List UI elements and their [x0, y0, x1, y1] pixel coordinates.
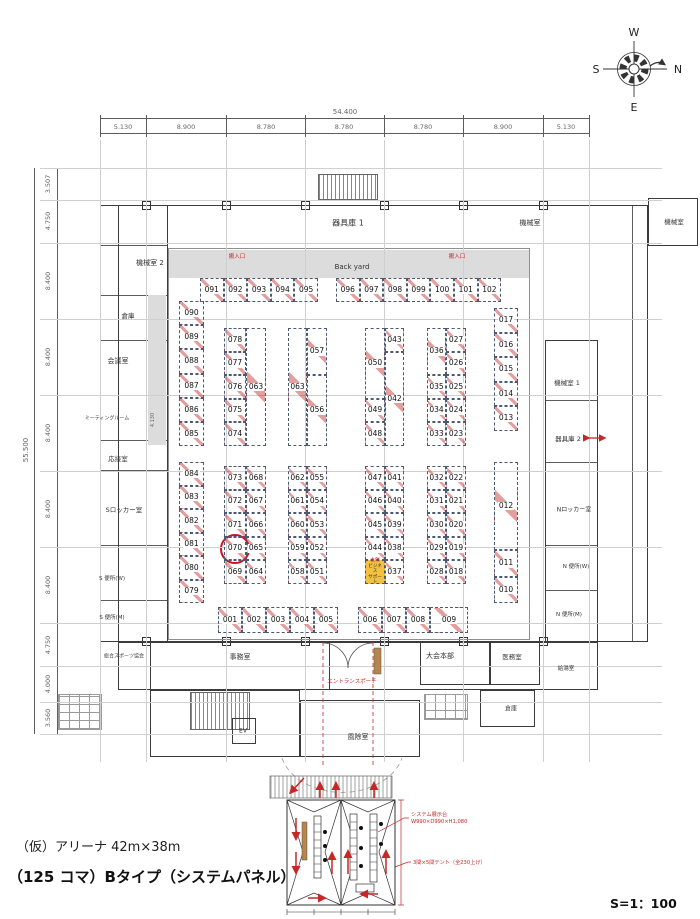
booth-cell: 054 — [307, 490, 327, 514]
booth-number: 087 — [183, 382, 199, 390]
booth-cell: 035 — [427, 375, 446, 399]
booth-cell: 022 — [446, 466, 466, 490]
room-label-equip-store-1: 器具庫 1 — [332, 218, 364, 229]
dimension-segment-left: 4.750 — [44, 636, 52, 655]
booth-number: 033 — [428, 430, 444, 438]
booth-cell: 094 — [271, 278, 295, 302]
booth-number: 102 — [481, 286, 497, 294]
dimension-total-top: 54.400 — [333, 108, 358, 116]
booth-cell: 051 — [307, 560, 327, 584]
booth-number: 093 — [251, 286, 267, 294]
booth-number: 072 — [227, 497, 243, 505]
floor-plan-canvas: W E S N — [0, 0, 700, 919]
booth-cell: 003 — [266, 607, 290, 633]
booth-number: 036 — [428, 347, 444, 355]
booth-cell: 016 — [494, 333, 518, 358]
booth-number: 050 — [367, 359, 383, 367]
booth-number: 092 — [227, 286, 243, 294]
booth-number: 074 — [227, 430, 243, 438]
dimension-segment-left: 4.750 — [44, 212, 52, 231]
booth-number: 077 — [227, 359, 243, 367]
booth-cell: 059 — [288, 537, 307, 561]
booth-number: 088 — [183, 357, 199, 365]
booth-cell: 091 — [200, 278, 224, 302]
booth-number: 076 — [227, 383, 243, 391]
booth-cell: 102 — [478, 278, 502, 302]
dimension-segment-top: 8.900 — [177, 123, 196, 131]
booth-cell: 009 — [430, 607, 468, 633]
booth-cell: 025 — [446, 375, 466, 399]
booth-cell: 098 — [383, 278, 407, 302]
booth-number: 084 — [183, 470, 199, 478]
booth-number: 025 — [448, 383, 464, 391]
booth-cell: 057 — [307, 328, 327, 375]
booth-cell: 065 — [246, 537, 266, 561]
booth-cell: 083 — [179, 486, 204, 510]
booth-cell: 027 — [446, 328, 466, 352]
room-label-storage-br: 倉庫 — [505, 704, 517, 713]
booth-number: 044 — [367, 544, 383, 552]
booth-number: 048 — [367, 430, 383, 438]
booth-number: 090 — [183, 309, 199, 317]
booth-cell: 090 — [179, 301, 204, 325]
booth-cell: 013 — [494, 406, 518, 431]
room-label-machine-room-1: 機械室 1 — [554, 377, 580, 387]
booth-cell: 042 — [385, 352, 404, 446]
booth-number: 083 — [183, 493, 199, 501]
booth-cell: 062 — [288, 466, 307, 490]
booth-number: 078 — [227, 336, 243, 344]
booth-cell: 041 — [385, 466, 404, 490]
booth-cell: 052 — [307, 537, 327, 561]
organizer-support-text: サポート — [366, 575, 384, 586]
booth-cell: 092 — [224, 278, 248, 302]
dimension-segment-left: 8.400 — [44, 272, 52, 291]
booth-cell: 058 — [288, 560, 307, 584]
booth-number: 060 — [289, 521, 305, 529]
room-label-n-toilet-m: N 便所(M) — [556, 610, 582, 618]
booth-number: 020 — [448, 521, 464, 529]
booth-number: 035 — [428, 383, 444, 391]
booth-number: 067 — [248, 497, 264, 505]
booth-cell: 072 — [224, 490, 246, 514]
booth-cell: 015 — [494, 357, 518, 382]
booth-cell: 068 — [246, 466, 266, 490]
booth-cell: 029 — [427, 537, 446, 561]
booth-number: 101 — [458, 286, 474, 294]
booth-cell: 024 — [446, 399, 466, 423]
room-label-s-locker-room: Sロッカー室 — [106, 504, 143, 514]
booth-number: 100 — [434, 286, 450, 294]
booth-cell: 085 — [179, 422, 204, 446]
booth-cell: 089 — [179, 325, 204, 349]
inset-annotation-1a: システム展示台 — [411, 810, 447, 818]
booth-cell: 023 — [446, 422, 466, 446]
booth-cell: 073 — [224, 466, 246, 490]
room-label-office: 事務室 — [230, 652, 251, 662]
booth-cell: 028 — [427, 560, 446, 584]
dimension-segment-top: 5.130 — [114, 123, 133, 131]
booth-cell: 063 — [246, 328, 266, 446]
room-label-s-toilet-m: S 便所(M) — [99, 613, 124, 621]
booth-cell: 082 — [179, 509, 204, 533]
booth-number: 054 — [309, 497, 325, 505]
booth-number: 063 — [289, 383, 305, 391]
booth-cell: 033 — [427, 422, 446, 446]
booth-number: 007 — [386, 616, 402, 624]
dimension-segment-left: 8.400 — [44, 424, 52, 443]
booth-cell: 056 — [307, 375, 327, 446]
booth-number: 071 — [227, 521, 243, 529]
dimension-segment-top: 8.900 — [494, 123, 513, 131]
booth-number: 085 — [183, 430, 199, 438]
plan-subtitle: （仮）アリーナ 42m×38m — [16, 836, 180, 855]
booth-number: 029 — [428, 544, 444, 552]
booth-cell: 037 — [385, 560, 404, 584]
booth-number: 039 — [386, 521, 402, 529]
booth-number: 042 — [386, 395, 402, 403]
room-label-equip-store-2: 器具庫 2 — [555, 433, 581, 443]
booth-number: 018 — [448, 568, 464, 576]
booth-number: 059 — [289, 544, 305, 552]
booth-cell: 074 — [224, 422, 246, 446]
booth-cell: 026 — [446, 352, 466, 376]
room-label-kitchenette: 給湯室 — [558, 664, 575, 672]
room-label-windbreak: 風除室 — [348, 732, 369, 742]
booth-number: 024 — [448, 406, 464, 414]
dimension-segment-left: 8.400 — [44, 500, 52, 519]
booth-cell: 032 — [427, 466, 446, 490]
booth-cell: 070 — [224, 537, 246, 561]
booth-number: 098 — [387, 286, 403, 294]
booth-cell: 044 — [365, 537, 385, 561]
booth-number: 095 — [298, 286, 314, 294]
booth-cell: 020 — [446, 513, 466, 537]
mat-bar — [302, 822, 307, 860]
booth-cell: 055 — [307, 466, 327, 490]
booth-number: 002 — [246, 616, 262, 624]
booth-cell: 101 — [454, 278, 478, 302]
booth-cell: 081 — [179, 533, 204, 557]
booth-number: 027 — [448, 336, 464, 344]
booth-number: 062 — [289, 474, 305, 482]
dimension-segment-top: 8.780 — [257, 123, 276, 131]
booth-cell: 021 — [446, 490, 466, 514]
booth-number: 053 — [309, 521, 325, 529]
booth-cell: 080 — [179, 556, 204, 580]
booth-number: 037 — [386, 568, 402, 576]
booth-number: 030 — [428, 521, 444, 529]
room-label-machine-room-2: 機械室 2 — [136, 258, 164, 268]
booth-number: 014 — [498, 390, 514, 398]
inset-annotation-1b: W990×D990×H1,080 — [411, 819, 467, 825]
dimension-total-left: 55.500 — [22, 438, 30, 463]
booth-detail-inset: システム展示台 W990×D990×H1,080 3間×5間テント（全230上げ… — [258, 772, 508, 919]
room-label-sports-assoc: 総合スポーツ協会 — [104, 653, 144, 660]
booth-number: 011 — [498, 559, 514, 567]
dimension-corridor: 4.130 — [150, 413, 156, 427]
booth-number: 004 — [294, 616, 310, 624]
booth-cell: 061 — [288, 490, 307, 514]
booth-cell: 011 — [494, 550, 518, 577]
booth-number: 080 — [183, 564, 199, 572]
booth-cell: 007 — [382, 607, 406, 633]
booth-number: 091 — [204, 286, 220, 294]
booth-cell: 086 — [179, 398, 204, 422]
booth-number: 003 — [270, 616, 286, 624]
booth-number: 023 — [448, 430, 464, 438]
booth-cell: 047 — [365, 466, 385, 490]
booth-cell: 049 — [365, 399, 385, 423]
room-label-machine-room-annex: 機械室 — [664, 216, 684, 226]
booth-cell: 096 — [336, 278, 360, 302]
booth-cell: 034 — [427, 399, 446, 423]
dimension-segment-top: 8.780 — [335, 123, 354, 131]
booth-number: 055 — [309, 474, 325, 482]
booth-number: 001 — [222, 616, 238, 624]
booth-cell: 088 — [179, 349, 204, 373]
booth-number: 047 — [367, 474, 383, 482]
booth-cell: 100 — [430, 278, 454, 302]
booth-number: 081 — [183, 540, 199, 548]
booth-cell: 063 — [288, 328, 307, 446]
dimension-segment-left: 8.400 — [44, 348, 52, 367]
booth-cell: 006 — [358, 607, 382, 633]
booth-cell: 071 — [224, 513, 246, 537]
booth-cell: 095 — [294, 278, 318, 302]
booth-number: 005 — [318, 616, 334, 624]
booth-number: 065 — [248, 544, 264, 552]
booth-number: 094 — [274, 286, 290, 294]
booth-number: 032 — [428, 474, 444, 482]
booth-cell: 087 — [179, 374, 204, 398]
booth-cell: 075 — [224, 399, 246, 423]
room-label-back-yard: Back yard — [335, 263, 370, 271]
booth-number: 066 — [248, 521, 264, 529]
plan-title: （125 コマ）Bタイプ（システムパネル） — [8, 866, 296, 887]
booth-cell: 066 — [246, 513, 266, 537]
booth-number: 064 — [248, 568, 264, 576]
booth-cell: 045 — [365, 513, 385, 537]
dimension-segment-top: 5.130 — [557, 123, 576, 131]
booth-cell: 077 — [224, 352, 246, 376]
loading-entrance-label: 搬入口 — [449, 252, 466, 260]
booth-cell: 018 — [446, 560, 466, 584]
booth-number: 069 — [227, 568, 243, 576]
booth-cell: 019 — [446, 537, 466, 561]
booth-number: 086 — [183, 406, 199, 414]
booth-cell: 039 — [385, 513, 404, 537]
booth-number: 082 — [183, 517, 199, 525]
booth-number: 010 — [498, 586, 514, 594]
booth-cell: 004 — [290, 607, 314, 633]
booth-number: 006 — [362, 616, 378, 624]
booth-number: 028 — [428, 568, 444, 576]
booth-number: 099 — [410, 286, 426, 294]
booth-number: 089 — [183, 333, 199, 341]
booth-number: 061 — [289, 497, 305, 505]
booth-cell: 050 — [365, 328, 385, 399]
loading-entrance-label: 搬入口 — [229, 252, 246, 260]
booth-number: 068 — [248, 474, 264, 482]
room-label-storage-left: 倉庫 — [122, 310, 135, 320]
booth-number: 016 — [498, 341, 514, 349]
booth-number: 038 — [386, 544, 402, 552]
dimension-segment-top: 8.780 — [414, 123, 433, 131]
booth-cell: 043 — [385, 328, 404, 352]
booth-number: 073 — [227, 474, 243, 482]
booth-cell: 079 — [179, 580, 204, 604]
booth-number: 063 — [248, 383, 264, 391]
booth-cell: 060 — [288, 513, 307, 537]
booth-number: 026 — [448, 359, 464, 367]
booth-number: 040 — [386, 497, 402, 505]
booth-number: 021 — [448, 497, 464, 505]
booth-cell: 031 — [427, 490, 446, 514]
booth-number: 013 — [498, 414, 514, 422]
booth-cell: 046 — [365, 490, 385, 514]
organizer-support-cell: 主催ビジネスサポート — [365, 560, 385, 584]
room-label-s-toilet-w: S 便所(W) — [99, 574, 125, 582]
booth-cell: 030 — [427, 513, 446, 537]
booth-cell: 010 — [494, 577, 518, 603]
dimension-segment-left: 3.507 — [44, 175, 52, 194]
booth-number: 049 — [367, 406, 383, 414]
room-label-elevator: EV — [239, 728, 247, 735]
booth-number: 031 — [428, 497, 444, 505]
booth-number: 008 — [410, 616, 426, 624]
booth-number: 017 — [498, 316, 514, 324]
booth-number: 046 — [367, 497, 383, 505]
booth-number: 041 — [386, 474, 402, 482]
booth-cell: 069 — [224, 560, 246, 584]
booth-cell: 097 — [360, 278, 384, 302]
booth-cell: 076 — [224, 375, 246, 399]
booth-cell: 008 — [406, 607, 430, 633]
booth-number: 022 — [448, 474, 464, 482]
room-label-n-locker-room: Nロッカー室 — [557, 505, 592, 514]
dimension-segment-left: 4.000 — [44, 675, 52, 694]
booth-number: 070 — [227, 544, 243, 552]
booth-cell: 038 — [385, 537, 404, 561]
booth-cell: 005 — [314, 607, 338, 633]
room-label-conference-room: 会議室 — [108, 356, 129, 366]
booth-number: 045 — [367, 521, 383, 529]
booth-cell: 017 — [494, 308, 518, 333]
inset-annotation-2: 3間×5間テント（全230上げ） — [413, 858, 486, 866]
booth-cell: 040 — [385, 490, 404, 514]
booth-cell: 093 — [247, 278, 271, 302]
booth-number: 043 — [386, 336, 402, 344]
booth-number: 009 — [441, 616, 457, 624]
room-label-hq: 大会本部 — [426, 651, 454, 661]
booth-number: 052 — [309, 544, 325, 552]
booth-number: 097 — [363, 286, 379, 294]
entrance-porch-label: エントランスポーチ — [327, 677, 376, 685]
booth-number: 096 — [340, 286, 356, 294]
booth-number: 019 — [448, 544, 464, 552]
room-label-machine-room-top: 機械室 — [520, 218, 541, 228]
room-label-n-toilet-w: N 便所(W) — [563, 562, 590, 570]
booth-number: 075 — [227, 406, 243, 414]
booth-number: 056 — [309, 406, 325, 414]
booth-cell: 036 — [427, 328, 446, 375]
booth-cell: 064 — [246, 560, 266, 584]
booth-cell: 048 — [365, 422, 385, 446]
booth-cell: 099 — [407, 278, 431, 302]
room-label-reception-room: 応接室 — [108, 453, 128, 463]
booth-cell: 084 — [179, 462, 204, 486]
booth-cell: 053 — [307, 513, 327, 537]
booth-number: 034 — [428, 406, 444, 414]
room-label-meeting-room: ミーティングルーム — [85, 415, 130, 422]
organizer-support-text: ビジネス — [366, 564, 384, 575]
booth-number: 079 — [183, 587, 199, 595]
dimension-segment-left: 8.400 — [44, 576, 52, 595]
booth-cell: 078 — [224, 328, 246, 352]
booth-number: 015 — [498, 365, 514, 373]
booth-cell: 014 — [494, 382, 518, 407]
booth-cell: 002 — [242, 607, 266, 633]
booth-cell: 012 — [494, 462, 518, 550]
scale-label: S=1：100 — [610, 893, 677, 912]
booth-number: 051 — [309, 568, 325, 576]
booth-number: 057 — [309, 347, 325, 355]
booth-cell: 001 — [218, 607, 242, 633]
inset-dimension-line — [287, 909, 395, 915]
booth-cell: 067 — [246, 490, 266, 514]
booth-number: 012 — [498, 502, 514, 510]
dimension-segment-left: 3.560 — [44, 709, 52, 728]
booth-number: 058 — [289, 568, 305, 576]
room-label-medical: 医務室 — [502, 651, 522, 661]
